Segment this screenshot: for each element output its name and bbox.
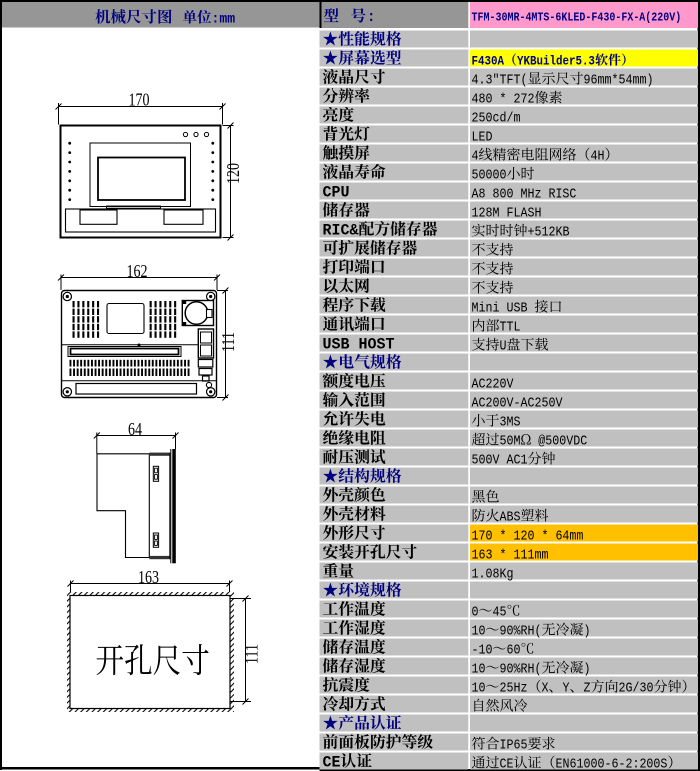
svg-text:4: 4 xyxy=(472,148,479,164)
svg-text:@500VDC: @500VDC xyxy=(531,433,587,449)
svg-text:ABS: ABS xyxy=(500,509,521,525)
svg-text:Mini USB: Mini USB xyxy=(472,300,535,316)
svg-text:): ) xyxy=(584,623,591,639)
svg-text:Z: Z xyxy=(584,680,591,696)
svg-text:TFM-30MR-4MTS-6KLED-F430-FX-A(: TFM-30MR-4MTS-6KLED-F430-FX-A(220V) xyxy=(472,12,682,25)
svg-text:163 * 111mm: 163 * 111mm xyxy=(472,547,549,563)
svg-text:IP65: IP65 xyxy=(500,737,528,753)
svg-text:250cd/m: 250cd/m xyxy=(472,110,521,126)
svg-text:170 * 120 * 64mm: 170 * 120 * 64mm xyxy=(472,528,584,544)
svg-text:EN61000-6-2:200S: EN61000-6-2:200S xyxy=(556,756,668,771)
svg-text:45: 45 xyxy=(493,604,507,620)
svg-text:+512KB: +512KB xyxy=(528,224,570,240)
svg-text:2G/30: 2G/30 xyxy=(619,680,654,696)
svg-text:128M FLASH: 128M FLASH xyxy=(472,205,542,221)
svg-text::: : xyxy=(367,10,375,27)
svg-text:111: 111 xyxy=(243,644,262,664)
svg-text:1.08Kg: 1.08Kg xyxy=(472,566,514,582)
svg-text:LED: LED xyxy=(472,129,493,145)
svg-text:500V AC1: 500V AC1 xyxy=(472,452,528,468)
svg-text:10: 10 xyxy=(472,661,486,677)
svg-text:U: U xyxy=(500,338,507,354)
svg-text:162: 162 xyxy=(126,263,147,282)
svg-text:4H: 4H xyxy=(591,148,605,164)
svg-text:): ) xyxy=(584,661,591,677)
svg-text:25Hz: 25Hz xyxy=(500,680,528,696)
svg-text:10: 10 xyxy=(472,623,486,639)
svg-text:CPU: CPU xyxy=(323,183,350,202)
svg-text:A8 800 MHz RISC: A8 800 MHz RISC xyxy=(472,186,577,202)
svg-text:Y: Y xyxy=(563,680,570,696)
svg-text:163: 163 xyxy=(138,569,159,588)
svg-text:F430A: F430A xyxy=(472,54,505,69)
svg-text:50M: 50M xyxy=(500,433,521,449)
svg-text:3MS: 3MS xyxy=(500,414,521,430)
svg-text:50000: 50000 xyxy=(472,167,507,183)
svg-text:170: 170 xyxy=(128,91,149,110)
svg-text:YKBuilder5.3: YKBuilder5.3 xyxy=(517,54,595,69)
svg-text:480 * 272: 480 * 272 xyxy=(472,91,535,107)
svg-text:120: 120 xyxy=(225,163,244,184)
svg-text:4.3"TFT(: 4.3"TFT( xyxy=(472,72,528,88)
svg-text:10: 10 xyxy=(472,680,486,696)
svg-text:AC200V-AC250V: AC200V-AC250V xyxy=(472,395,563,411)
svg-text:90%RH(: 90%RH( xyxy=(500,661,542,677)
svg-text:TTL: TTL xyxy=(500,319,521,335)
svg-text:X: X xyxy=(542,680,549,696)
svg-text:64: 64 xyxy=(128,421,142,440)
svg-text::mm: :mm xyxy=(212,12,236,27)
svg-text:96mm*54mm): 96mm*54mm) xyxy=(584,72,654,88)
svg-text:RIC&: RIC& xyxy=(323,221,360,240)
svg-text:-10: -10 xyxy=(472,642,493,658)
svg-text:111: 111 xyxy=(220,332,239,352)
svg-text:USB HOST: USB HOST xyxy=(323,335,395,354)
svg-text:90%RH(: 90%RH( xyxy=(500,623,542,639)
svg-text:CE: CE xyxy=(500,756,514,771)
svg-text:AC220V: AC220V xyxy=(472,376,514,392)
svg-text:0: 0 xyxy=(472,604,479,620)
svg-text:CE: CE xyxy=(323,753,341,771)
svg-text:60: 60 xyxy=(507,642,521,658)
